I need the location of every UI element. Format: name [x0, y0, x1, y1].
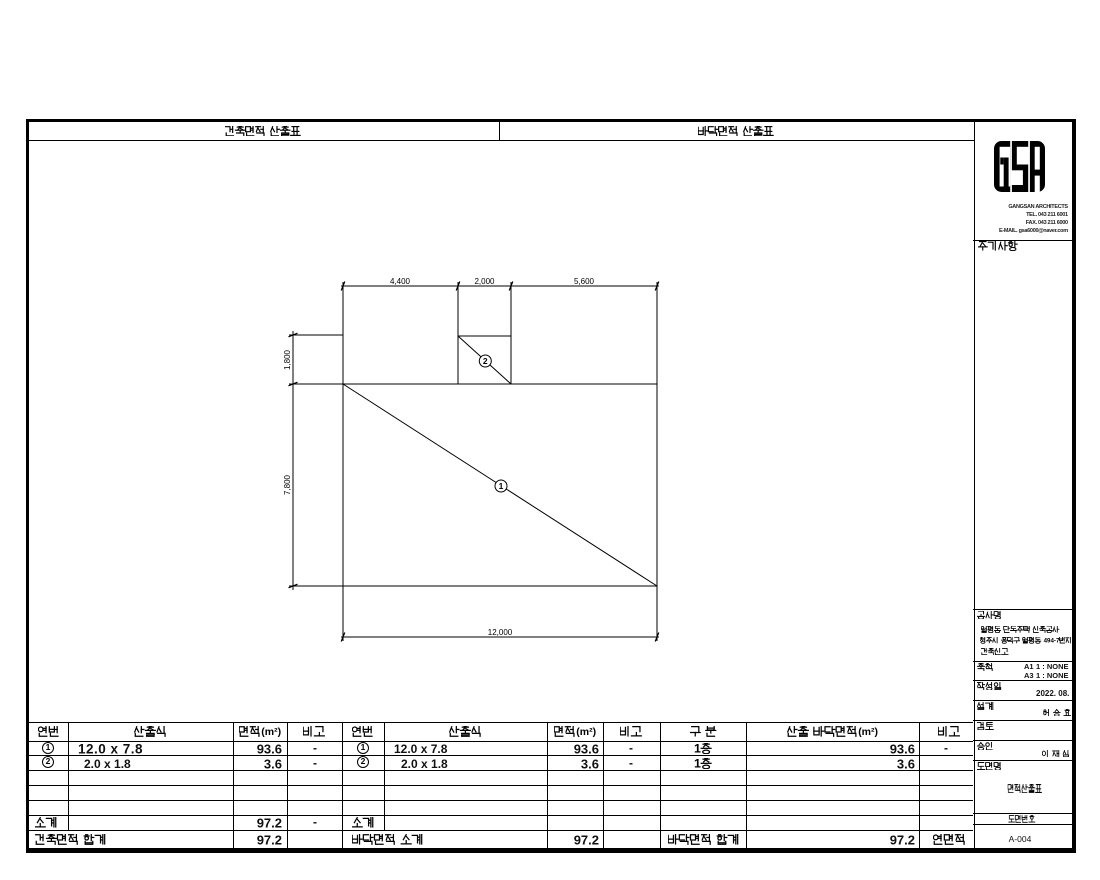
svg-text:(m²): (m²) [261, 726, 281, 737]
svg-text:2: 2 [483, 356, 488, 366]
svg-text:(m²): (m²) [576, 726, 596, 737]
svg-text:12,000: 12,000 [488, 628, 513, 637]
svg-text:494-7: 494-7 [1044, 637, 1060, 644]
svg-text:2,000: 2,000 [474, 277, 495, 286]
svg-text:(m²): (m²) [858, 726, 878, 737]
svg-text:1: 1 [694, 743, 701, 754]
svg-text:5,600: 5,600 [574, 277, 595, 286]
svg-text:1,800: 1,800 [283, 349, 292, 370]
svg-text:7,800: 7,800 [283, 474, 292, 495]
svg-text:1: 1 [694, 758, 701, 769]
svg-text:1: 1 [499, 481, 504, 491]
svg-text:4,400: 4,400 [390, 277, 411, 286]
